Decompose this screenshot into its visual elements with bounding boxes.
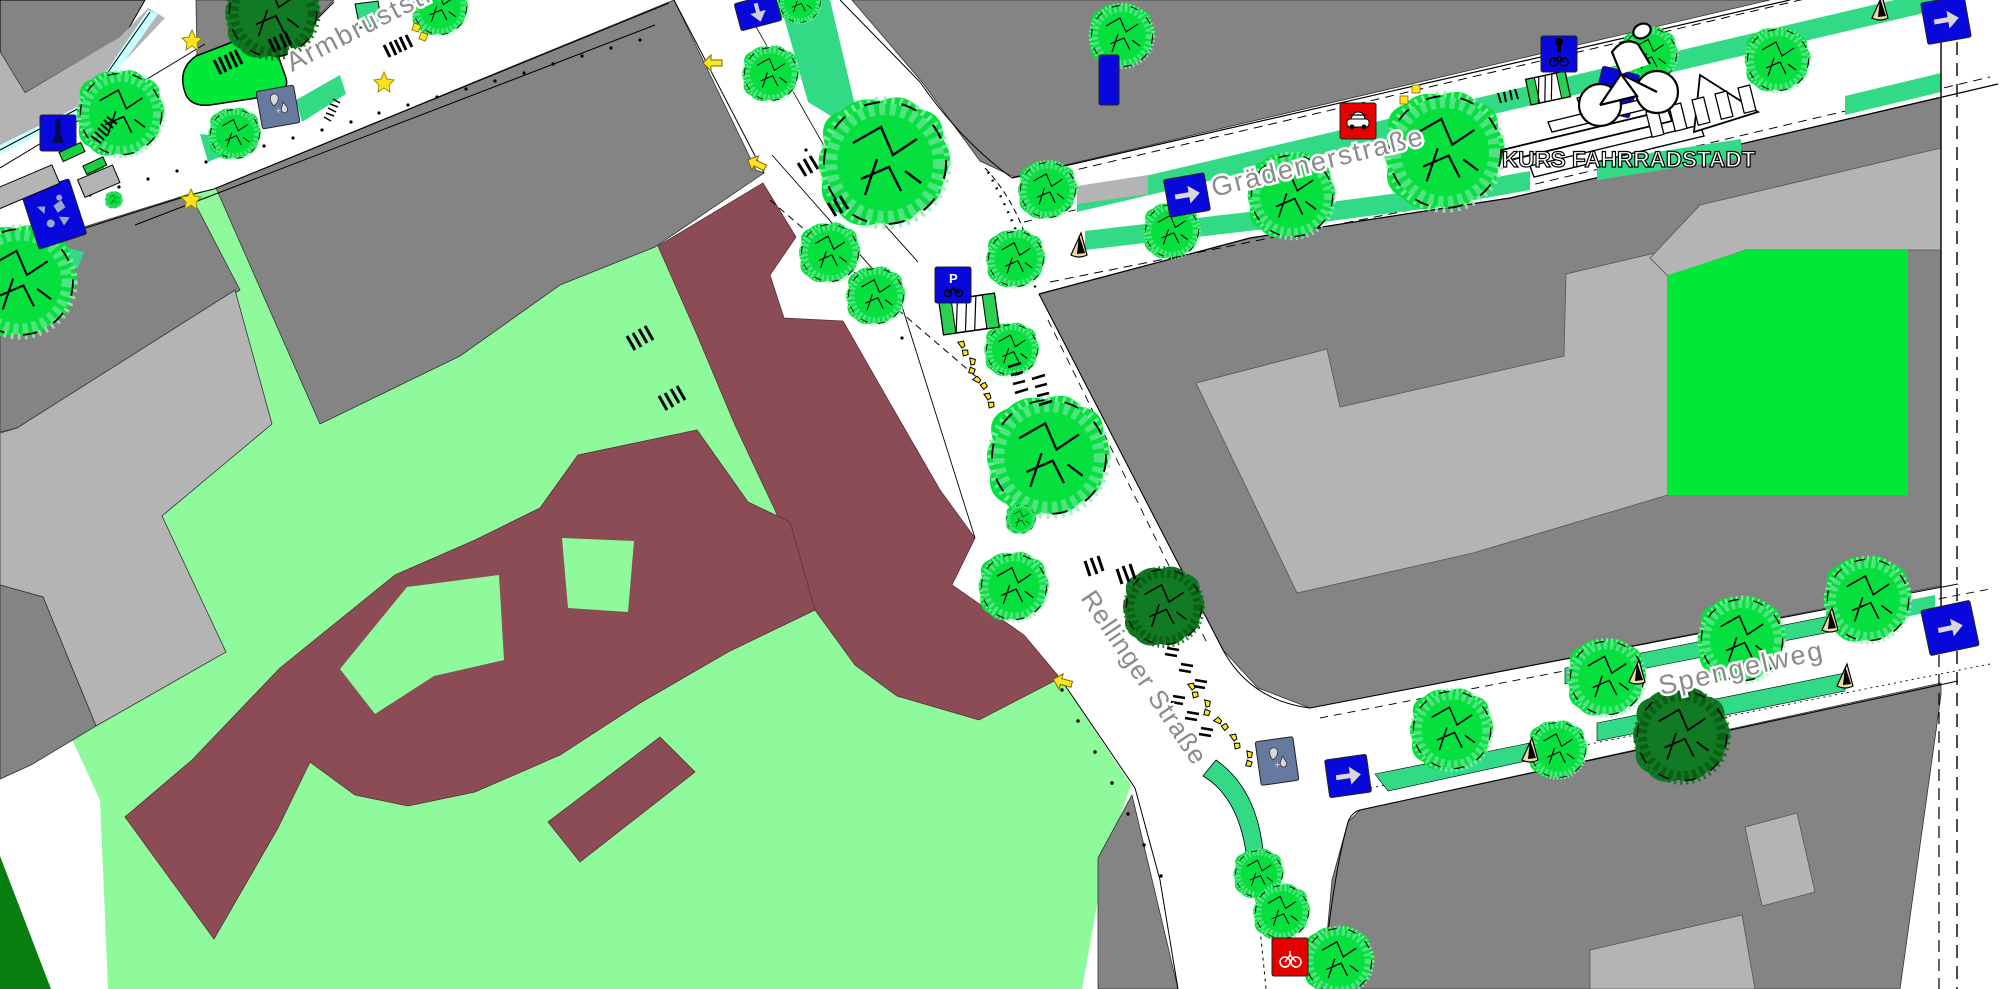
svg-text:P: P — [949, 271, 958, 286]
svg-text:KURS FAHRRADSTADT: KURS FAHRRADSTADT — [1502, 147, 1756, 172]
